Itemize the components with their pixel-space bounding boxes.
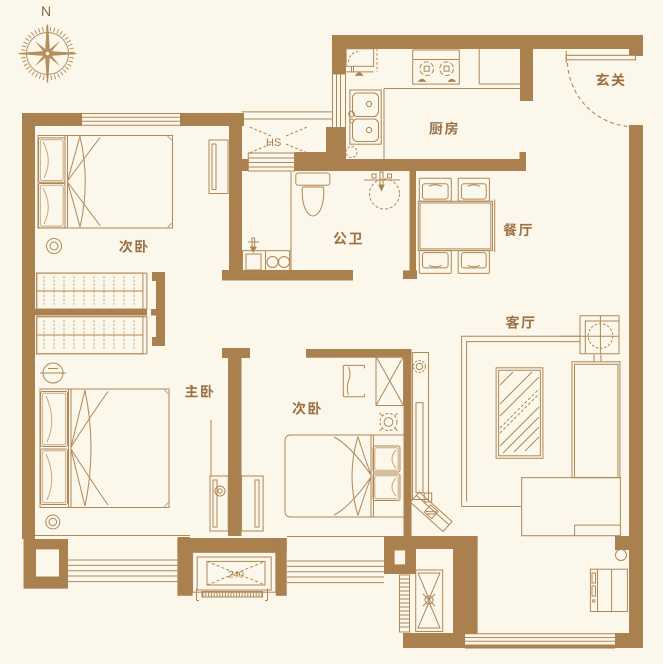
svg-text:N: N bbox=[41, 3, 51, 19]
svg-text:240: 240 bbox=[228, 570, 244, 581]
svg-text:HS: HS bbox=[266, 137, 281, 149]
